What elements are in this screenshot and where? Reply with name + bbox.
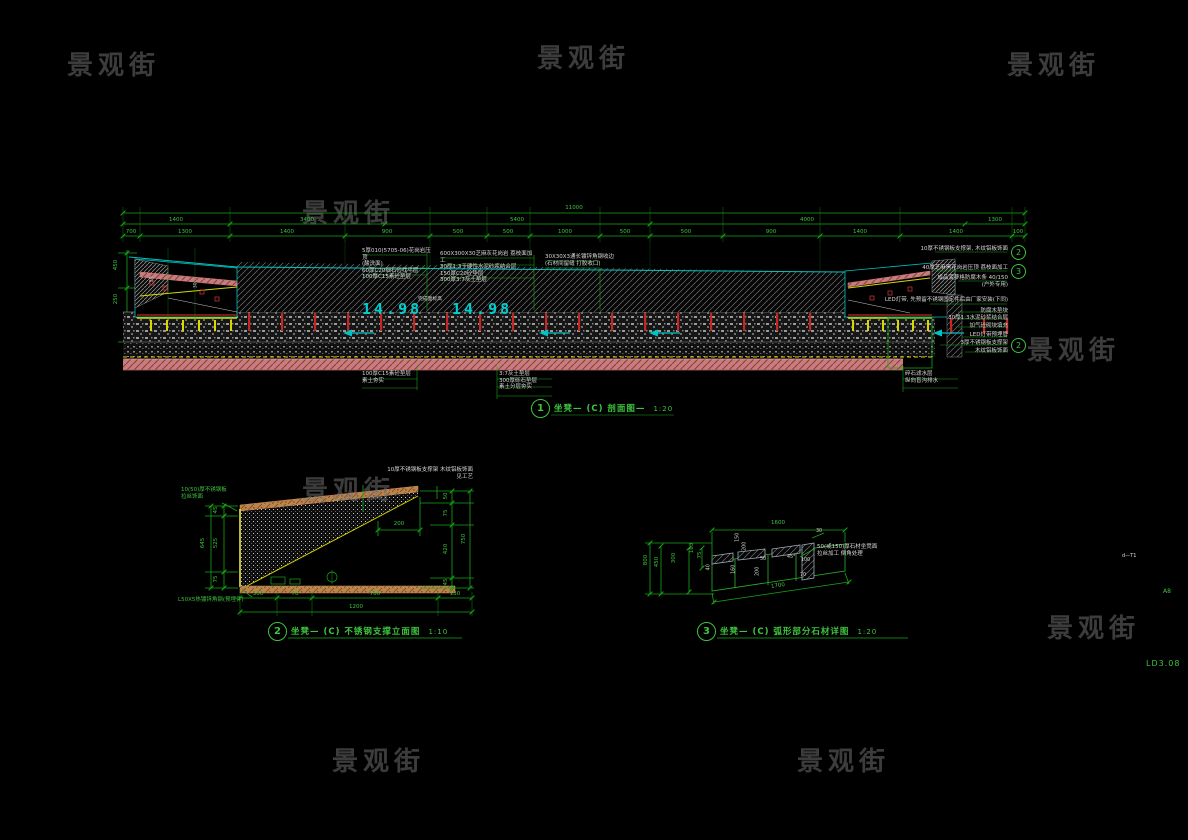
d1-dim-row2: 500 xyxy=(671,229,701,235)
sheet-marker: A8 xyxy=(1163,589,1171,596)
d1-note-above: 30X30X3通长镀锌角钢收边 (石材间留缝 打胶收口) xyxy=(545,254,653,267)
spot-level: 14.98 xyxy=(452,300,512,318)
d2-dim-left: 525 xyxy=(213,530,219,556)
d3-dim-left: 75 xyxy=(697,542,703,568)
ref-bubble: 2 xyxy=(1011,338,1026,353)
d3-dim-right-small: 30 xyxy=(816,529,822,536)
cad-sheet: 景观街 景观街 景观街 景观街 景观街 景观街 景观街 景观街 景观街 1100… xyxy=(0,0,1188,840)
d3-dim-inner: 200 xyxy=(743,533,750,559)
d3-dim-top: 1600 xyxy=(763,520,793,526)
d2-label-top: 10厚不锈钢板支撑架 木纹铝板饰面 见工艺 xyxy=(337,467,473,480)
d3-dim-ticks xyxy=(648,528,852,605)
d2-scale: 1:10 xyxy=(428,628,448,636)
d1-dim-row2: 500 xyxy=(443,229,473,235)
d1-note-above: 600X300X30芝麻灰花岗岩 荔枝面加工 30厚1:3干硬性水泥砂浆结合层 … xyxy=(440,251,536,284)
ref-bubble: 2 xyxy=(1011,245,1026,260)
d1-dim-overall: 11000 xyxy=(554,205,594,211)
d2-dim-inner: 200 xyxy=(384,521,414,527)
d1-note-right: 3厚不锈钢板支撑架 xyxy=(880,340,1008,347)
d3-dim-left: 450 xyxy=(654,549,660,575)
detail-bubble-2: 2 xyxy=(268,622,287,641)
sheet-edge-note: d—T1 xyxy=(1122,553,1136,560)
d3-label-right: 50(或150)厚石材坐凳面 拉丝加工 倒角处理 xyxy=(817,544,963,557)
detail-bubble-1: 1 xyxy=(531,399,550,418)
watermark: 景观街 xyxy=(1047,608,1140,645)
d3-dim-inner: 200 xyxy=(756,558,763,584)
d1-dim-left: 450 xyxy=(113,252,119,278)
watermark: 景观街 xyxy=(537,38,630,75)
d3-dim-inner: 70 xyxy=(800,573,806,580)
d2-dim-right: 75 xyxy=(443,500,449,526)
d2-title-text: 坐凳— (C) 不锈钢支撑立面图 xyxy=(291,627,420,637)
d2-dim-left-overall: 645 xyxy=(200,530,206,556)
d2-dim-right-overall: 750 xyxy=(461,526,467,552)
d2-dim-bottom: 700 xyxy=(360,591,390,597)
d1-dim-left: 250 xyxy=(113,286,119,312)
d1-note-below: 3:7灰土垫层 300厚砾石垫层 素土分层夯实 xyxy=(499,371,555,391)
sheet-number: LD3.08 xyxy=(1146,661,1180,668)
d3-dim-inner: 45° xyxy=(787,555,796,562)
d3-dim-inner: 150 xyxy=(736,524,743,550)
d1-note-right: 木纹铝板饰面 xyxy=(880,348,1008,355)
d1-dim-row2: 1400 xyxy=(941,229,971,235)
d2-dim-left: 75 xyxy=(213,566,219,592)
d1-dim-row1: 3400 xyxy=(292,217,322,223)
d1-note-above: 5厚010(5705-06)花岗岩压顶 (酸洗面) 60厚C20细石砼找平层 1… xyxy=(362,248,434,281)
d2-label-bottom-left: L50X5热镀锌角钢(预埋件) xyxy=(178,597,274,604)
ref-bubble: 3 xyxy=(1011,264,1026,279)
d3-dim-inner: 100 xyxy=(801,558,810,565)
d1-note-below: 100厚C15素砼垫层 素土夯实 xyxy=(362,371,418,384)
d1-dim-row2: 1400 xyxy=(272,229,302,235)
d2-dim-right: 45 xyxy=(443,569,449,595)
d1-note-right: LED灯带预埋管 xyxy=(880,332,1008,339)
watermark: 景观街 xyxy=(332,741,425,778)
d1-dim-row1: 1400 xyxy=(161,217,191,223)
d3-dim-left: 800 xyxy=(643,547,649,573)
drawing-geometry xyxy=(0,0,1188,840)
d3-scale: 1:20 xyxy=(857,628,877,636)
d2-dim-right: 420 xyxy=(443,536,449,562)
d3-dim-inner: 40 xyxy=(707,554,714,580)
d2-dim-left: 45 xyxy=(213,497,219,523)
d2-dim-bottom: 70 xyxy=(280,591,310,597)
d1-note-right: 加气砼砌块填充 xyxy=(880,323,1008,330)
d3-dim-inner: 160 xyxy=(732,556,739,582)
d1-dim-row2: 900 xyxy=(756,229,786,235)
spot-level: 14.98 xyxy=(362,300,422,318)
d2-dim-bottom-overall: 1200 xyxy=(341,604,371,610)
d3-dim-left: 300 xyxy=(671,545,677,571)
d1-dim-row2: 700 xyxy=(116,229,146,235)
d1-title: 坐凳— (C) 剖面图—1:20 xyxy=(554,402,673,414)
d3-title-text: 坐凳— (C) 弧形部分石材详图 xyxy=(720,627,849,637)
d1-dim-row2: 900 xyxy=(372,229,402,235)
watermark: 景观街 xyxy=(1007,45,1100,82)
d1-note-right: 30厚1:3水泥砂浆结合层 xyxy=(880,315,1008,322)
watermark: 景观街 xyxy=(67,45,160,82)
d1-note-right: 40厚芝麻黑花岗岩压顶 荔枝面加工 xyxy=(880,265,1008,272)
d1-note-right: 防腐木垫块 xyxy=(880,308,1008,315)
d3-title: 坐凳— (C) 弧形部分石材详图1:20 xyxy=(720,625,877,637)
bench-label: 50 xyxy=(150,272,157,286)
d1-dim-row2: 1300 xyxy=(170,229,200,235)
watermark: 景观街 xyxy=(1027,330,1120,367)
d3-dim-left: 163 xyxy=(689,535,695,561)
d1-dim-row1: 5400 xyxy=(502,217,532,223)
d2-dim-bottom: 300 xyxy=(243,591,273,597)
d1-dim-row2: 500 xyxy=(493,229,523,235)
d1-dim-row2: 1000 xyxy=(550,229,580,235)
d2-label-top-left: 10(50)厚不锈钢板 拉丝饰面 xyxy=(181,487,243,500)
d1-note-right: 10厚不锈钢板支撑架, 木纹铝板饰面 xyxy=(880,246,1008,253)
d1-dim-row2: 100 xyxy=(1003,229,1033,235)
d1-title-text: 坐凳— (C) 剖面图— xyxy=(554,404,645,414)
d1-dim-row2: 1400 xyxy=(845,229,875,235)
d2-title: 坐凳— (C) 不锈钢支撑立面图1:10 xyxy=(291,625,448,637)
bench-label: 30 xyxy=(194,278,201,292)
d1-note-below: 碎石滤水层 纵向盲沟排水 xyxy=(905,371,961,384)
watermark: 景观街 xyxy=(302,193,395,230)
d1-dim-row1: 1300 xyxy=(980,217,1010,223)
level-note: 完成面标高 xyxy=(418,297,442,304)
d1-dim-row1: 4000 xyxy=(792,217,822,223)
d1-note-right: 成品菠萝格防腐木条 40/150 (户外专用) xyxy=(880,275,1008,288)
d1-scale: 1:20 xyxy=(653,405,673,413)
d1-dim-row2: 500 xyxy=(610,229,640,235)
d1-note-right: LED灯带, 先预留不锈钢固定件后由厂家安装(下同) xyxy=(856,297,1008,304)
detail-bubble-3: 3 xyxy=(697,622,716,641)
watermark: 景观街 xyxy=(797,741,890,778)
